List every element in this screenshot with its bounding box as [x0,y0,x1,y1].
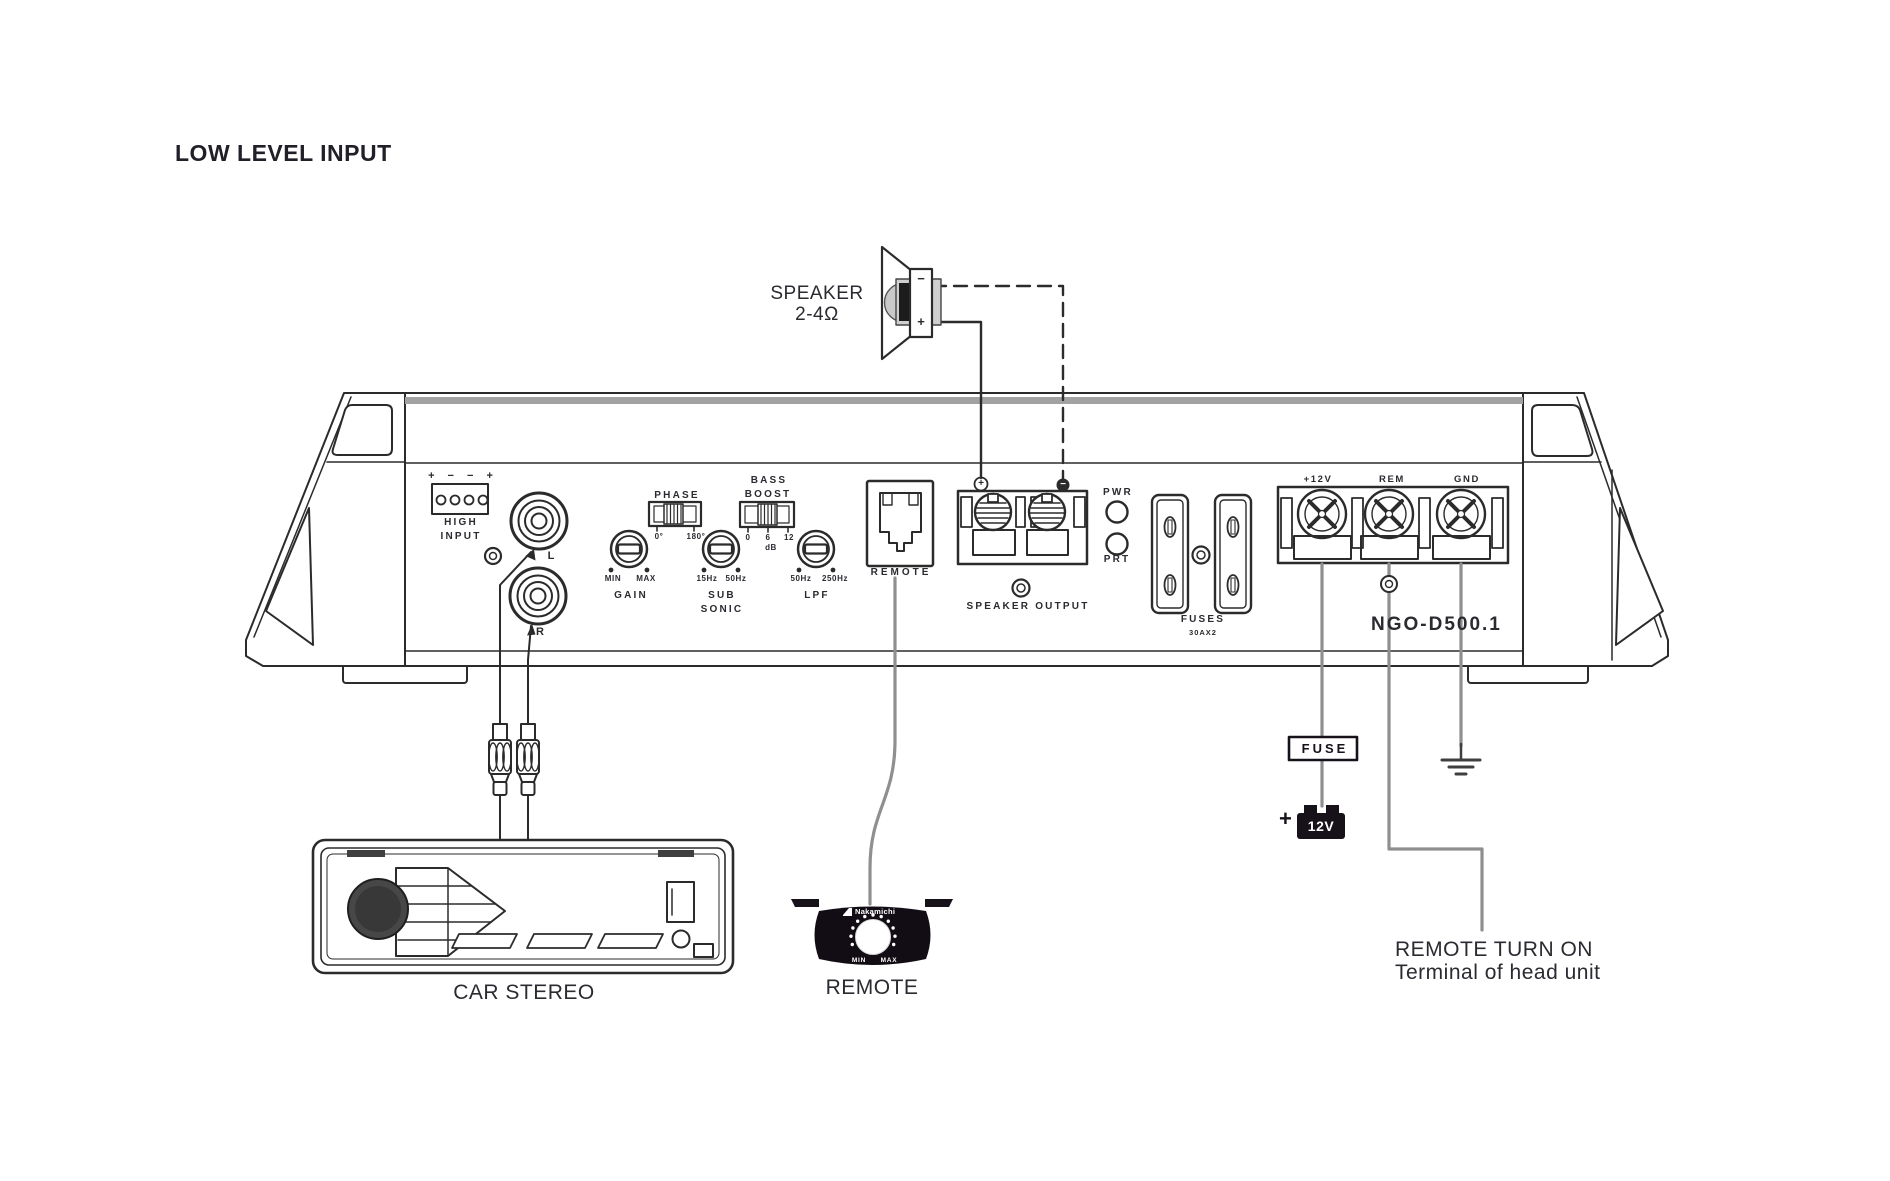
remote-control-label: REMOTE [826,977,919,998]
lpf-label: LPF [804,591,830,601]
speaker-icon [882,247,941,359]
prt-label: PRT [1104,555,1131,565]
remote-min-label: MIN [852,958,866,965]
power-terminal-block [1278,487,1508,563]
prt-led [1107,534,1128,555]
fuses-label: FUSES [1181,615,1225,625]
speaker-output-minus-label: − [1060,480,1066,490]
bass-unit-label: dB [765,544,777,552]
remote-jack-label: REMOTE [871,568,932,578]
battery-label: 12V [1308,819,1334,833]
high-input-polarity: + − − + [428,471,498,482]
battery-plus-label: + [1279,808,1292,830]
boost-label: BOOST [745,490,792,500]
rem-wire-screw [1381,576,1397,592]
remote-max-label: MAX [881,958,898,965]
speaker-label-line2: 2-4Ω [795,305,839,324]
gain-min-label: MIN [605,575,621,583]
speaker-label-line1: SPEAKER [770,284,863,303]
speaker-output-label: SPEAKER OUTPUT [966,602,1089,612]
plus12v-label: +12V [1304,475,1333,485]
bass-label: BASS [751,476,788,486]
fuses-rating-label: 30AX2 [1189,629,1217,637]
car-stereo-label: CAR STEREO [453,982,595,1003]
rca-plug-right [517,724,539,841]
phase-0-label: 0° [655,533,664,541]
speaker-plus-label: + [917,315,925,328]
gain-max-label: MAX [636,575,656,583]
remote-jack [867,481,933,566]
panel-screw [485,548,501,564]
phase-label: PHASE [654,491,699,501]
fuse-box-label: FUSE [1302,742,1349,755]
lpf-min-label: 50Hz [790,575,811,583]
rca-jack-left [511,493,567,549]
page-title: LOW LEVEL INPUT [175,142,392,165]
high-input-label-2: INPUT [441,532,482,542]
vent-slot [452,934,517,948]
sub-label: SUB [708,591,736,601]
gain-label: GAIN [614,591,648,601]
sonic-label: SONIC [701,605,744,615]
pwr-label: PWR [1103,488,1133,498]
note-line2: Terminal of head unit [1395,962,1600,983]
subsonic-min-label: 15Hz [696,575,717,583]
gnd-label: GND [1454,475,1480,485]
bass-tick-6: 6 [765,534,770,542]
remote-level-knob [856,920,891,955]
note-line1: REMOTE TURN ON [1395,939,1593,960]
high-input-label-1: HIGH [444,518,478,528]
phase-switch [649,502,701,531]
panel-screw [1013,580,1030,597]
rem-label: REM [1379,475,1405,485]
rca-right-label: R [536,627,544,638]
speaker-minus-label: − [917,272,925,285]
wiring-diagram: LOW LEVEL INPUT SPEAKER 2-4Ω − + + − − +… [0,0,1890,1181]
phase-180-label: 180° [687,533,706,541]
car-stereo-icon [313,840,733,973]
rca-left-label: L [548,551,555,562]
ground-icon [1442,744,1480,774]
speaker-output-plus-label: + [978,479,984,489]
rca-jack-right [510,568,566,624]
model-label: NGO-D500.1 [1371,615,1502,634]
vent-slot [598,934,663,948]
bass-tick-12: 12 [784,534,794,542]
lpf-max-label: 250Hz [822,575,848,583]
subsonic-max-label: 50Hz [725,575,746,583]
bass-boost-switch [740,502,794,532]
remote-brand-label: Nakamichi [855,908,895,916]
high-input-connector [432,484,488,514]
panel-screw [1193,547,1210,564]
vent-slot [527,934,592,948]
pwr-led [1107,502,1128,523]
bass-tick-0: 0 [745,534,750,542]
diagram-line-art [0,0,1890,1181]
rca-plug-left [489,724,511,841]
